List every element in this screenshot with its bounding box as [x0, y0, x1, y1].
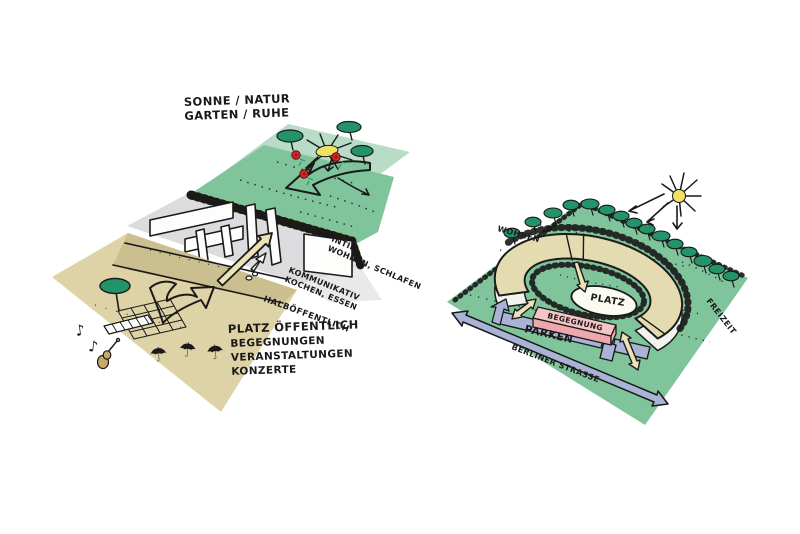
umbrella-icon: ☂: [178, 337, 198, 362]
concept-sketch-canvas: ♪ ♪ ☂ ☂ ☂ SONNE / NATUR GARTEN / RUHE: [0, 0, 800, 534]
sketch-svg: ♪ ♪ ☂ ☂ ☂ SONNE / NATUR GARTEN / RUHE: [0, 0, 800, 534]
sun-arrow: [629, 194, 664, 213]
left-layer-diagram: ♪ ♪ ☂ ☂ ☂ SONNE / NATUR GARTEN / RUHE: [52, 91, 426, 412]
sun-arrow: [647, 203, 668, 225]
dot: [246, 276, 252, 280]
label-sonne-natur: SONNE / NATUR GARTEN / RUHE: [184, 91, 296, 123]
label-platz-block: PLATZ ÖFFENTLICH BEGEGNUNGEN VERANSTALTU…: [227, 313, 366, 378]
right-site-diagram: WOHNEN PLATZ BEGEGNUNG PARKEN BERLINER S…: [447, 173, 748, 425]
music-note-icon: ♪: [88, 337, 99, 356]
umbrella-icon: ☂: [149, 342, 169, 367]
umbrella-icon: ☂: [205, 339, 225, 365]
sun-icon-right: [662, 173, 701, 216]
dot: [253, 272, 258, 276]
violin-icon: [98, 338, 120, 368]
music-note-icon: ♪: [74, 321, 86, 340]
